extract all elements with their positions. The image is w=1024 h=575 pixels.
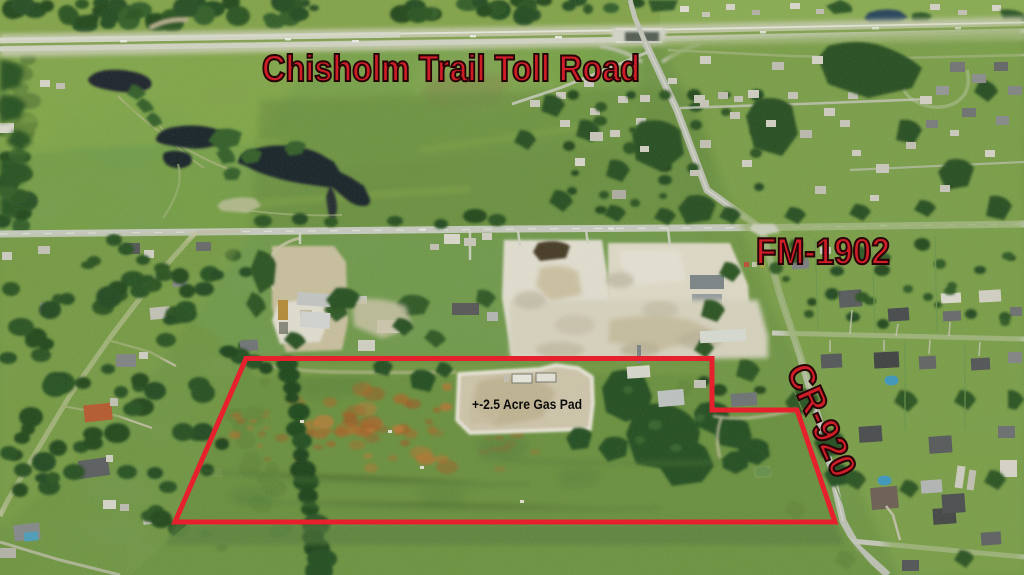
svg-text:Chisholm Trail Toll Road: Chisholm Trail Toll Road	[262, 48, 640, 89]
svg-text:+-2.5 Acre Gas Pad: +-2.5 Acre Gas Pad	[472, 396, 582, 412]
svg-text:FM-1902: FM-1902	[756, 231, 890, 272]
